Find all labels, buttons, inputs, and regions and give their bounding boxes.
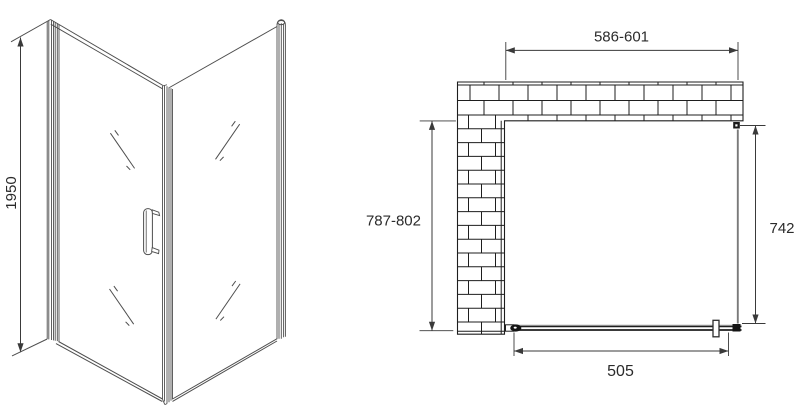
svg-text:742: 742 [770,220,795,237]
svg-text:586-601: 586-601 [594,29,649,46]
svg-text:1950: 1950 [3,176,20,209]
svg-text:787-802: 787-802 [366,213,421,230]
svg-text:505: 505 [607,363,634,380]
